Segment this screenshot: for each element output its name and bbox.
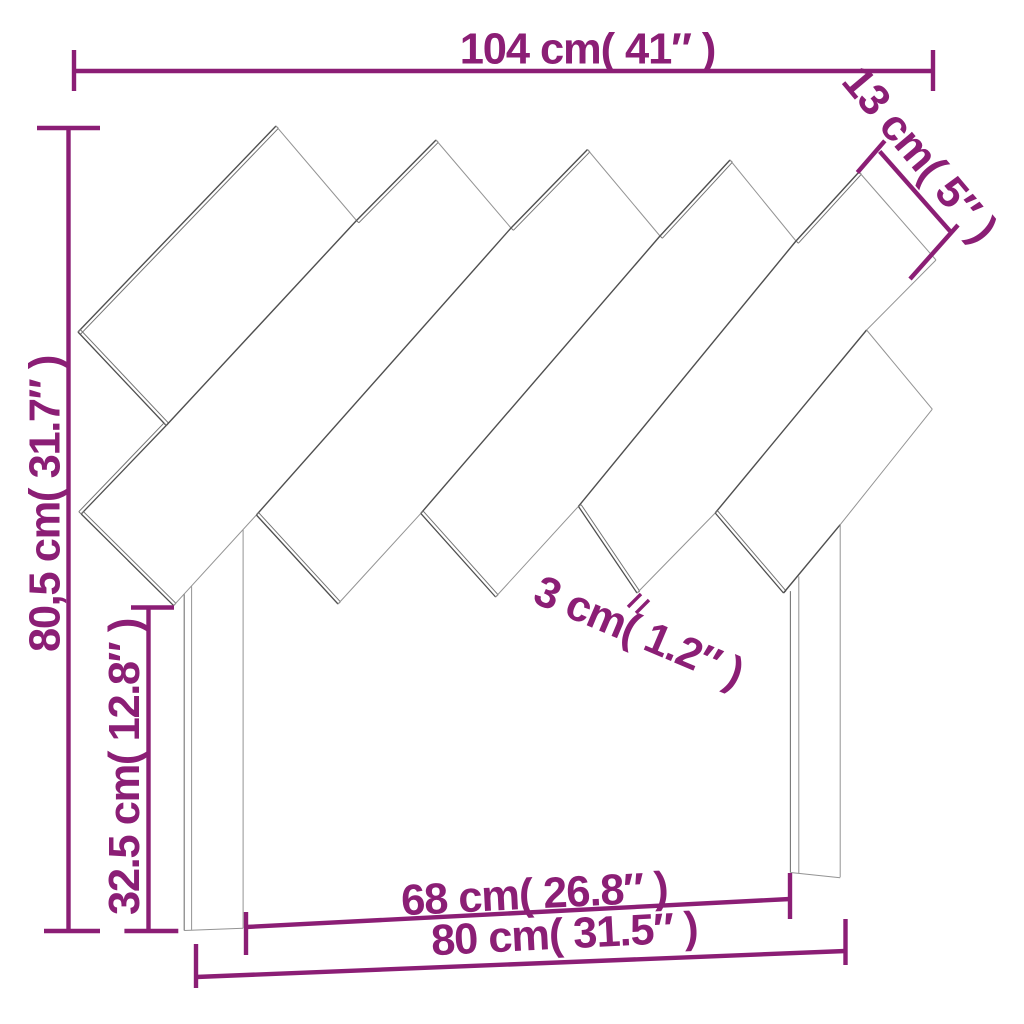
svg-text:32.5 cm( 12.8″ ): 32.5 cm( 12.8″ ) [101, 619, 149, 915]
svg-text:104 cm( 41″ ): 104 cm( 41″ ) [460, 26, 716, 74]
svg-text:80,5 cm( 31.7″ ): 80,5 cm( 31.7″ ) [22, 356, 70, 652]
svg-text:13 cm( 5″ ): 13 cm( 5″ ) [832, 58, 1006, 252]
svg-text:3 cm( 1.2″ ): 3 cm( 1.2″ ) [527, 567, 750, 698]
